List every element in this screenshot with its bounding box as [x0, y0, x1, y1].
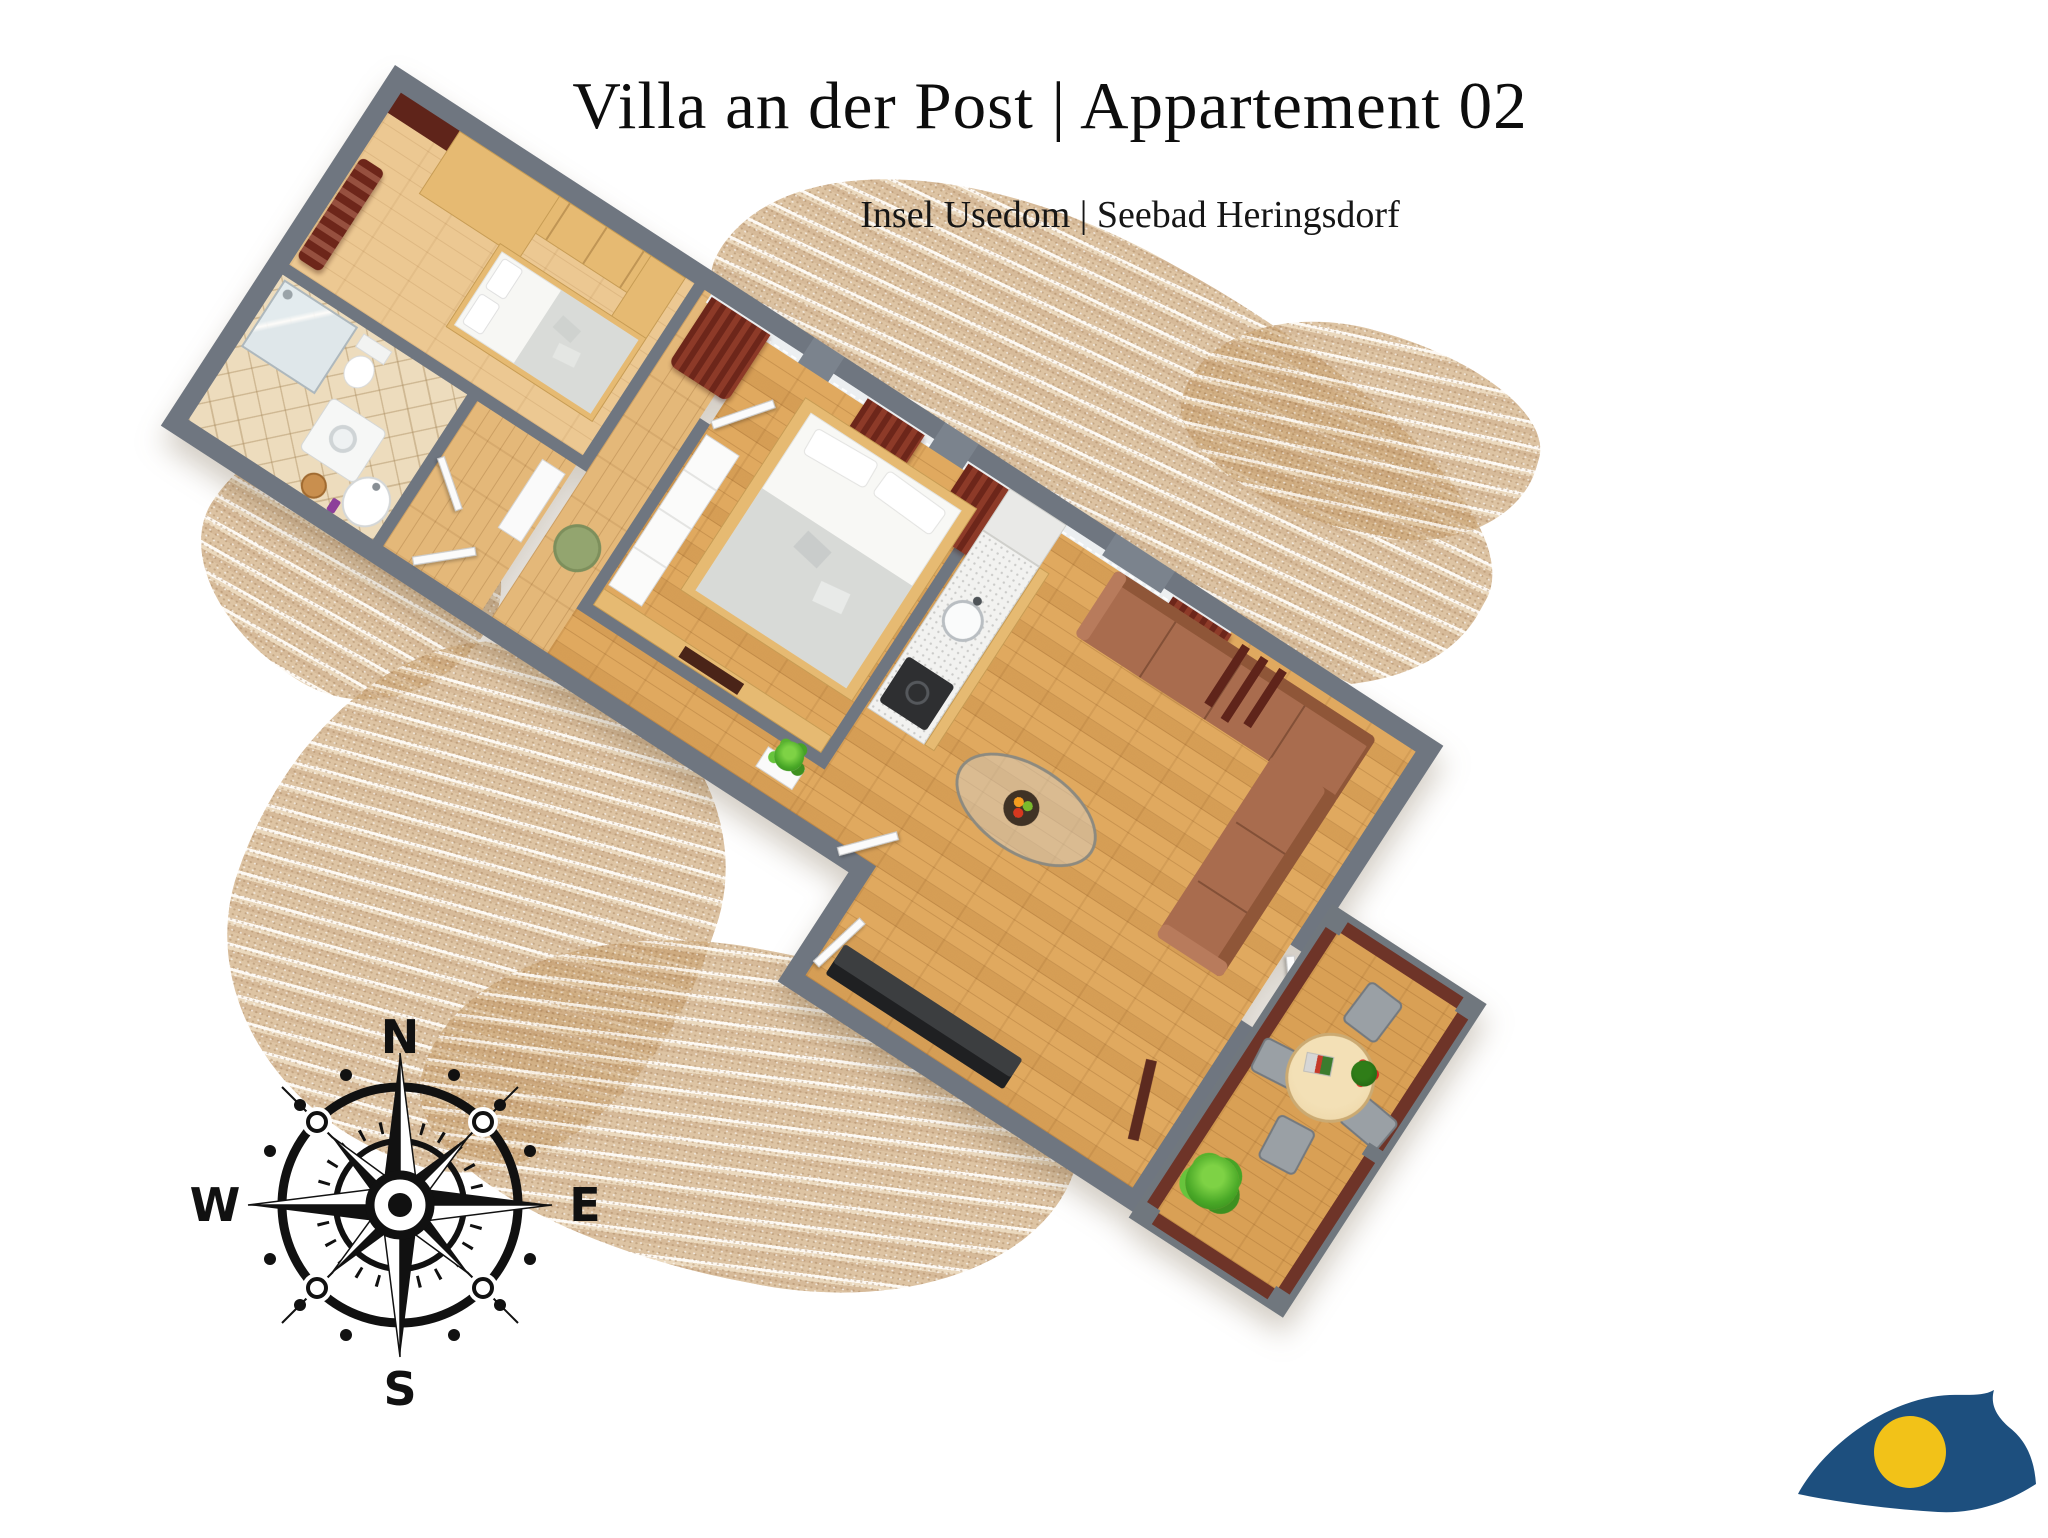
balcony-plant: [1175, 1145, 1250, 1220]
compass-rose-icon: N S W E: [185, 990, 615, 1420]
page-subtitle: Insel Usedom | Seebad Heringsdorf: [660, 193, 1600, 237]
compass-label-west: W: [190, 1178, 241, 1232]
balcony-chair: [1256, 1113, 1317, 1177]
railing-post: [1455, 997, 1477, 1019]
compass-label-east: E: [569, 1178, 600, 1232]
compass-label-south: S: [383, 1362, 416, 1416]
balcony-chair: [1341, 980, 1405, 1045]
page-title: Villa an der Post | Appartement 02: [480, 68, 1620, 145]
compass-label-north: N: [381, 1010, 420, 1064]
railing-post: [1267, 1286, 1289, 1308]
brand-logo-eye-icon: [1792, 1388, 2044, 1536]
